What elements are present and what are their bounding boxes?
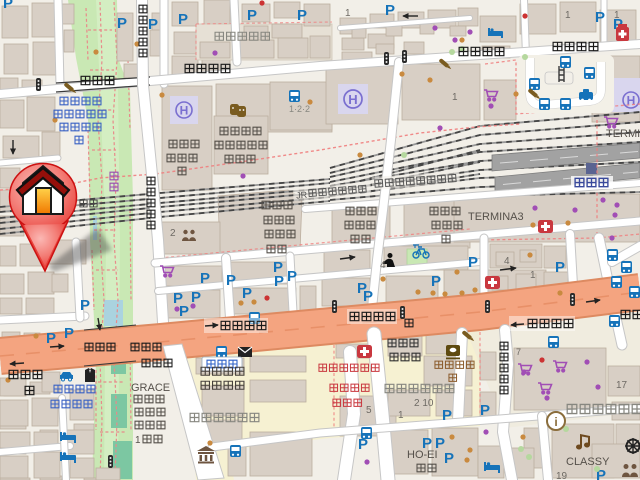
svg-text:P: P [431,273,441,290]
svg-text:1: 1 [135,435,141,446]
svg-text:4: 4 [504,256,510,267]
svg-text:5: 5 [366,405,372,416]
svg-text:1: 1 [452,92,458,103]
svg-text:GRACE: GRACE [131,382,170,394]
svg-text:P: P [46,330,56,347]
svg-text:i: i [554,415,557,429]
svg-text:1·2·2: 1·2·2 [289,104,310,114]
svg-text:P: P [595,9,605,26]
svg-text:HO-EI: HO-EI [407,449,438,461]
svg-text:P: P [242,285,252,302]
svg-text:P: P [468,254,478,271]
svg-text:1: 1 [614,10,620,21]
svg-text:P: P [274,273,284,290]
svg-text:JR: JR [296,190,308,201]
svg-text:1: 1 [398,410,404,421]
svg-text:2: 2 [170,228,176,239]
svg-text:17: 17 [616,380,628,391]
svg-text:P: P [117,15,127,32]
svg-text:CLASSY: CLASSY [566,456,610,468]
svg-text:P: P [297,7,307,24]
svg-text:P: P [80,297,90,314]
svg-text:19: 19 [556,471,568,480]
svg-text:P: P [247,7,257,24]
svg-text:TERMI: TERMI [606,128,640,140]
svg-text:H: H [180,104,189,118]
svg-text:P: P [226,272,236,289]
svg-text:P: P [442,407,452,424]
svg-text:1: 1 [530,270,536,281]
svg-text:P: P [287,268,297,285]
svg-text:P: P [64,325,74,342]
svg-text:P: P [555,259,565,276]
svg-text:P: P [178,11,188,28]
svg-text:1: 1 [345,8,351,19]
svg-text:7: 7 [516,347,521,357]
svg-text:P: P [179,303,189,320]
svg-text:H: H [348,92,357,107]
svg-text:4: 4 [380,260,386,271]
svg-text:P: P [200,270,210,287]
svg-text:P: P [444,450,454,467]
svg-text:P: P [363,288,373,305]
svg-text:TERMINA3: TERMINA3 [468,211,524,223]
svg-text:P: P [148,16,158,33]
svg-text:1: 1 [565,10,571,21]
svg-text:2 10: 2 10 [414,398,434,409]
svg-text:P: P [3,0,13,12]
svg-text:P: P [480,402,490,419]
svg-text:P: P [385,2,395,19]
